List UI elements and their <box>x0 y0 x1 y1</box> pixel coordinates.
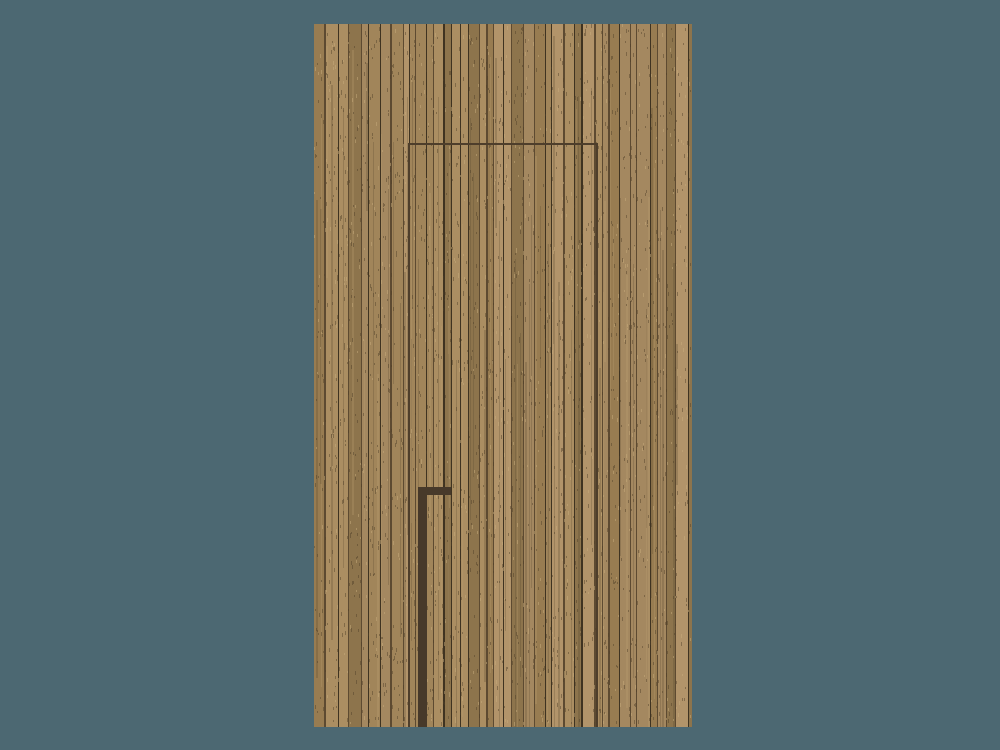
groove-top-line <box>408 143 598 145</box>
scene <box>0 0 1000 750</box>
handle-vertical-bar <box>418 487 427 727</box>
wood-door-render <box>0 0 1000 750</box>
groove-left-line <box>408 143 410 727</box>
wood-panel <box>314 24 692 727</box>
groove-right-line <box>596 143 598 727</box>
